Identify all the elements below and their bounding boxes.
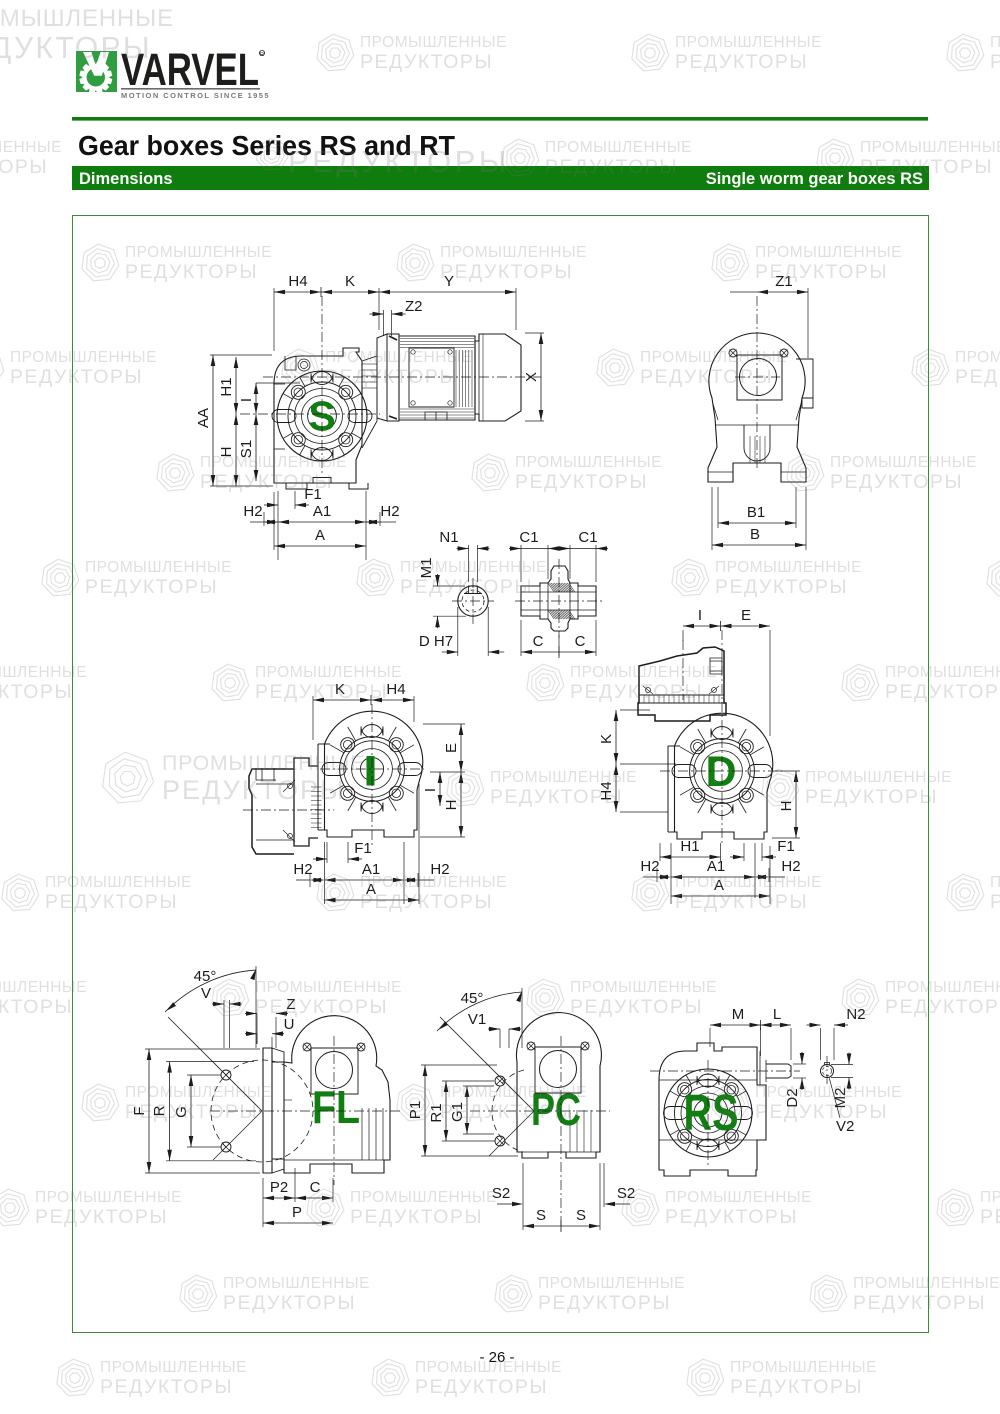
svg-text:РЕДУКТОРЫ: РЕДУКТОРЫ <box>675 891 808 913</box>
svg-text:РЕДУКТОРЫ: РЕДУКТОРЫ <box>570 681 703 703</box>
svg-text:РЕДУКТОРЫ: РЕДУКТОРЫ <box>885 996 1000 1018</box>
svg-text:РЕДУКТОРЫ: РЕДУКТОРЫ <box>538 1292 671 1314</box>
svg-text:ПРОМЫШЛЕННЫЕ: ПРОМЫШЛЕННЫЕ <box>0 5 174 32</box>
svg-text:РЕДУКТОРЫ: РЕДУКТОРЫ <box>45 891 178 913</box>
svg-text:ПРОМЫШЛЕННЫЕ: ПРОМЫШЛЕННЫЕ <box>125 244 272 261</box>
svg-text:C1: C1 <box>578 529 597 546</box>
svg-text:I: I <box>238 398 255 402</box>
svg-text:ПРОМЫШЛЕННЫЕ: ПРОМЫШЛЕННЫЕ <box>755 244 902 261</box>
svg-text:РЕДУКТОРЫ: РЕДУКТОРЫ <box>755 261 888 283</box>
svg-text:РЕДУКТОРЫ: РЕДУКТОРЫ <box>360 51 493 73</box>
svg-text:F1: F1 <box>777 838 795 855</box>
svg-text:ПРОМЫШЛЕННЫЕ: ПРОМЫШЛЕННЫЕ <box>640 349 787 366</box>
svg-text:D H7: D H7 <box>419 633 453 650</box>
svg-text:ПРОМЫШЛЕННЫЕ: ПРОМЫШЛЕННЫЕ <box>515 454 662 471</box>
svg-text:I: I <box>422 788 439 792</box>
svg-text:РЕДУКТОРЫ: РЕДУКТОРЫ <box>200 471 333 493</box>
svg-text:ПРОМЫШЛЕННЫЕ: ПРОМЫШЛЕННЫЕ <box>10 349 157 366</box>
svg-text:ПРОМЫШЛЕННЫЕ: ПРОМЫШЛЕННЫЕ <box>350 1189 497 1206</box>
svg-text:H2: H2 <box>640 858 659 875</box>
svg-text:ПРОМЫШЛЕННЫЕ: ПРОМЫШЛЕННЫЕ <box>545 139 692 156</box>
svg-text:РЕДУКТОРЫ: РЕДУКТОРЫ <box>860 156 993 178</box>
svg-text:РЕДУКТОРЫ: РЕДУКТОРЫ <box>0 156 48 178</box>
svg-text:ПРОМЫШЛЕННЫЕ: ПРОМЫШЛЕННЫЕ <box>490 769 637 786</box>
svg-text:K: K <box>598 734 615 744</box>
svg-text:C1: C1 <box>519 529 538 546</box>
svg-text:ПРОМЫШЛЕННЫЕ: ПРОМЫШЛЕННЫЕ <box>0 664 87 681</box>
svg-text:РЕДУКТОРЫ: РЕДУКТОРЫ <box>755 1101 888 1123</box>
svg-text:РЕДУКТОРЫ: РЕДУКТОРЫ <box>400 576 533 598</box>
svg-text:РЕДУКТОРЫ: РЕДУКТОРЫ <box>440 1101 573 1123</box>
svg-text:A1: A1 <box>707 858 725 875</box>
svg-text:ПРОМЫШЛЕННЫЕ: ПРОМЫШЛЕННЫЕ <box>885 979 1000 996</box>
svg-text:ПРОМЫШЛЕННЫЕ: ПРОМЫШЛЕННЫЕ <box>885 664 1000 681</box>
svg-text:ПРОМЫШЛЕННЫЕ: ПРОМЫШЛЕННЫЕ <box>665 1189 812 1206</box>
svg-text:D: D <box>705 748 736 796</box>
svg-text:N1: N1 <box>439 529 458 546</box>
svg-text:H1: H1 <box>218 377 235 396</box>
svg-text:A: A <box>315 527 325 544</box>
svg-text:ПРОМЫШЛЕННЫЕ: ПРОМЫШЛЕННЫЕ <box>715 559 862 576</box>
svg-text:РЕДУКТОРЫ: РЕДУКТОРЫ <box>730 1376 863 1398</box>
svg-text:РЕДУКТОРЫ: РЕДУКТОРЫ <box>715 576 848 598</box>
svg-text:H: H <box>778 801 795 812</box>
svg-text:ПРОМЫШЛЕННЫЕ: ПРОМЫШЛЕННЫЕ <box>45 874 192 891</box>
svg-text:H1: H1 <box>680 838 699 855</box>
svg-text:B: B <box>750 526 760 543</box>
svg-text:MOTION CONTROL SINCE 1955: MOTION CONTROL SINCE 1955 <box>121 91 270 100</box>
svg-text:ПРОМЫШЛЕННЫЕ: ПРОМЫШЛЕННЫЕ <box>85 559 232 576</box>
svg-text:РЕДУКТОРЫ: РЕДУКТОРЫ <box>360 891 493 913</box>
svg-text:U: U <box>284 1016 295 1033</box>
svg-text:S2: S2 <box>617 1185 635 1202</box>
svg-text:C: C <box>533 633 544 650</box>
svg-text:ПРОМЫШЛЕННЫЕ: ПРОМЫШЛЕННЫЕ <box>255 979 402 996</box>
svg-text:ПРОМЫШЛЕННЫЕ: ПРОМЫШЛЕННЫЕ <box>255 664 402 681</box>
svg-text:ПРОМЫШЛЕННЫЕ: ПРОМЫШЛЕННЫЕ <box>570 979 717 996</box>
svg-text:РЕДУКТОРЫ: РЕДУКТОРЫ <box>545 156 678 178</box>
svg-text:ПРОМЫШЛЕННЫЕ: ПРОМЫШЛЕННЫЕ <box>125 1084 272 1101</box>
svg-text:РЕДУКТОРЫ: РЕДУКТОРЫ <box>0 32 152 65</box>
svg-text:РЕДУКТОРЫ: РЕДУКТОРЫ <box>0 681 73 703</box>
svg-text:ПРОМЫШЛЕННЫЕ: ПРОМЫШЛЕННЫЕ <box>325 349 472 366</box>
svg-text:РЕДУКТОРЫ: РЕДУКТОРЫ <box>288 144 510 179</box>
svg-text:H2: H2 <box>293 861 312 878</box>
svg-text:РЕДУКТОРЫ: РЕДУКТОРЫ <box>665 1206 798 1228</box>
svg-text:РЕДУКТОРЫ: РЕДУКТОРЫ <box>125 261 258 283</box>
svg-text:P2: P2 <box>270 1179 288 1196</box>
svg-text:ПРОМЫШЛЕННЫЕ: ПРОМЫШЛЕННЫЕ <box>990 874 1000 891</box>
svg-text:A1: A1 <box>313 503 331 520</box>
svg-text:РЕДУКТОРЫ: РЕДУКТОРЫ <box>885 681 1000 703</box>
svg-text:P: P <box>292 1204 302 1221</box>
svg-text:I: I <box>698 607 702 624</box>
svg-text:ПРОМЫШЛЕННЫЕ: ПРОМЫШЛЕННЫЕ <box>853 1275 1000 1292</box>
svg-text:РЕДУКТОРЫ: РЕДУКТОРЫ <box>10 366 143 388</box>
svg-text:H2: H2 <box>243 503 262 520</box>
svg-text:B1: B1 <box>747 504 765 521</box>
svg-text:FL: FL <box>312 1081 360 1133</box>
svg-text:ПРОМЫШЛЕННЫЕ: ПРОМЫШЛЕННЫЕ <box>980 1189 1000 1206</box>
svg-text:РЕДУКТОРЫ: РЕДУКТОРЫ <box>570 996 703 1018</box>
svg-text:C: C <box>575 633 586 650</box>
svg-text:S: S <box>536 1207 546 1224</box>
svg-text:ПРОМЫШЛЕННЫЕ: ПРОМЫШЛЕННЫЕ <box>675 34 822 51</box>
svg-text:ПРОМЫШЛЕННЫЕ: ПРОМЫШЛЕННЫЕ <box>0 139 62 156</box>
svg-text:V1: V1 <box>468 1011 486 1028</box>
svg-text:РЕДУКТОРЫ: РЕДУКТОРЫ <box>35 1206 168 1228</box>
svg-text:ПРОМЫШЛЕННЫЕ: ПРОМЫШЛЕННЫЕ <box>805 769 952 786</box>
svg-text:S: S <box>576 1207 586 1224</box>
svg-text:РЕДУКТОРЫ: РЕДУКТОРЫ <box>415 1376 548 1398</box>
svg-text:ПРОМЫШЛЕННЫЕ: ПРОМЫШЛЕННЫЕ <box>100 1359 247 1376</box>
svg-text:РЕДУКТОРЫ: РЕДУКТОРЫ <box>100 1376 233 1398</box>
svg-text:РЕДУКТОРЫ: РЕДУКТОРЫ <box>990 891 1000 913</box>
svg-text:H4: H4 <box>288 273 307 290</box>
svg-text:AA: AA <box>195 408 212 428</box>
svg-text:F1: F1 <box>354 840 372 857</box>
svg-text:РЕДУКТОРЫ: РЕДУКТОРЫ <box>955 366 1000 388</box>
svg-text:РЕДУКТОРЫ: РЕДУКТОРЫ <box>980 1206 1000 1228</box>
svg-text:РЕДУКТОРЫ: РЕДУКТОРЫ <box>255 681 388 703</box>
svg-text:РЕДУКТОРЫ: РЕДУКТОРЫ <box>990 51 1000 73</box>
svg-text:РЕДУКТОРЫ: РЕДУКТОРЫ <box>675 51 808 73</box>
svg-text:R: R <box>260 52 264 58</box>
svg-text:ПРОМЫШЛЕННЫЕ: ПРОМЫШЛЕННЫЕ <box>162 751 365 775</box>
svg-text:ПРОМЫШЛЕННЫЕ: ПРОМЫШЛЕННЫЕ <box>675 874 822 891</box>
svg-text:H2: H2 <box>380 503 399 520</box>
svg-text:РЕДУКТОРЫ: РЕДУКТОРЫ <box>125 1101 258 1123</box>
svg-text:L: L <box>773 1006 781 1023</box>
svg-text:ПРОМЫШЛЕННЫЕ: ПРОМЫШЛЕННЫЕ <box>440 1084 587 1101</box>
svg-text:РЕДУКТОРЫ: РЕДУКТОРЫ <box>162 775 346 805</box>
svg-text:E: E <box>741 607 751 624</box>
svg-text:ПРОМЫШЛЕННЫЕ: ПРОМЫШЛЕННЫЕ <box>223 1275 370 1292</box>
svg-text:ПРОМЫШЛЕННЫЕ: ПРОМЫШЛЕННЫЕ <box>440 244 587 261</box>
svg-text:H2: H2 <box>781 858 800 875</box>
svg-text:РЕДУКТОРЫ: РЕДУКТОРЫ <box>350 1206 483 1228</box>
svg-text:45°: 45° <box>461 990 484 1007</box>
svg-text:K: K <box>345 273 355 290</box>
svg-text:РЕДУКТОРЫ: РЕДУКТОРЫ <box>490 786 623 808</box>
svg-text:ПРОМЫШЛЕННЫЕ: ПРОМЫШЛЕННЫЕ <box>200 454 347 471</box>
svg-text:РЕДУКТОРЫ: РЕДУКТОРЫ <box>0 996 73 1018</box>
svg-text:ПРОМЫШЛЕННЫЕ: ПРОМЫШЛЕННЫЕ <box>730 1359 877 1376</box>
svg-text:РЕДУКТОРЫ: РЕДУКТОРЫ <box>640 366 773 388</box>
svg-text:ПРОМЫШЛЕННЫЕ: ПРОМЫШЛЕННЫЕ <box>538 1275 685 1292</box>
svg-text:H4: H4 <box>386 681 405 698</box>
svg-text:ПРОМЫШЛЕННЫЕ: ПРОМЫШЛЕННЫЕ <box>955 349 1000 366</box>
svg-text:РЕДУКТОРЫ: РЕДУКТОРЫ <box>515 471 648 493</box>
svg-text:ПРОМЫШЛЕННЫЕ: ПРОМЫШЛЕННЫЕ <box>360 34 507 51</box>
svg-text:ПРОМЫШЛЕННЫЕ: ПРОМЫШЛЕННЫЕ <box>360 874 507 891</box>
svg-text:РЕДУКТОРЫ: РЕДУКТОРЫ <box>830 471 963 493</box>
svg-text:РЕДУКТОРЫ: РЕДУКТОРЫ <box>325 366 458 388</box>
svg-text:ПРОМЫШЛЕННЫЕ: ПРОМЫШЛЕННЫЕ <box>990 34 1000 51</box>
svg-text:РЕДУКТОРЫ: РЕДУКТОРЫ <box>805 786 938 808</box>
svg-text:Dimensions: Dimensions <box>79 170 173 188</box>
svg-text:РЕДУКТОРЫ: РЕДУКТОРЫ <box>853 1292 986 1314</box>
svg-text:РЕДУКТОРЫ: РЕДУКТОРЫ <box>223 1292 356 1314</box>
svg-text:РЕДУКТОРЫ: РЕДУКТОРЫ <box>255 996 388 1018</box>
svg-text:X: X <box>523 372 540 382</box>
svg-text:V: V <box>201 985 211 1002</box>
svg-text:ПРОМЫШЛЕННЫЕ: ПРОМЫШЛЕННЫЕ <box>400 559 547 576</box>
svg-text:ПРОМЫШЛЕННЫЕ: ПРОМЫШЛЕННЫЕ <box>830 454 977 471</box>
svg-text:Z2: Z2 <box>405 298 423 315</box>
svg-text:ПРОМЫШЛЕННЫЕ: ПРОМЫШЛЕННЫЕ <box>35 1189 182 1206</box>
svg-text:ПРОМЫШЛЕННЫЕ: ПРОМЫШЛЕННЫЕ <box>755 1084 902 1101</box>
svg-text:ПРОМЫШЛЕННЫЕ: ПРОМЫШЛЕННЫЕ <box>415 1359 562 1376</box>
svg-text:ПРОМЫШЛЕННЫЕ: ПРОМЫШЛЕННЫЕ <box>860 139 1000 156</box>
svg-text:M: M <box>732 1006 745 1023</box>
svg-text:РЕДУКТОРЫ: РЕДУКТОРЫ <box>440 261 573 283</box>
svg-text:E: E <box>443 743 460 753</box>
svg-text:45°: 45° <box>194 968 217 985</box>
svg-text:ПРОМЫШЛЕННЫЕ: ПРОМЫШЛЕННЫЕ <box>570 664 717 681</box>
svg-text:РЕДУКТОРЫ: РЕДУКТОРЫ <box>85 576 218 598</box>
svg-text:ПРОМЫШЛЕННЫЕ: ПРОМЫШЛЕННЫЕ <box>0 979 87 996</box>
